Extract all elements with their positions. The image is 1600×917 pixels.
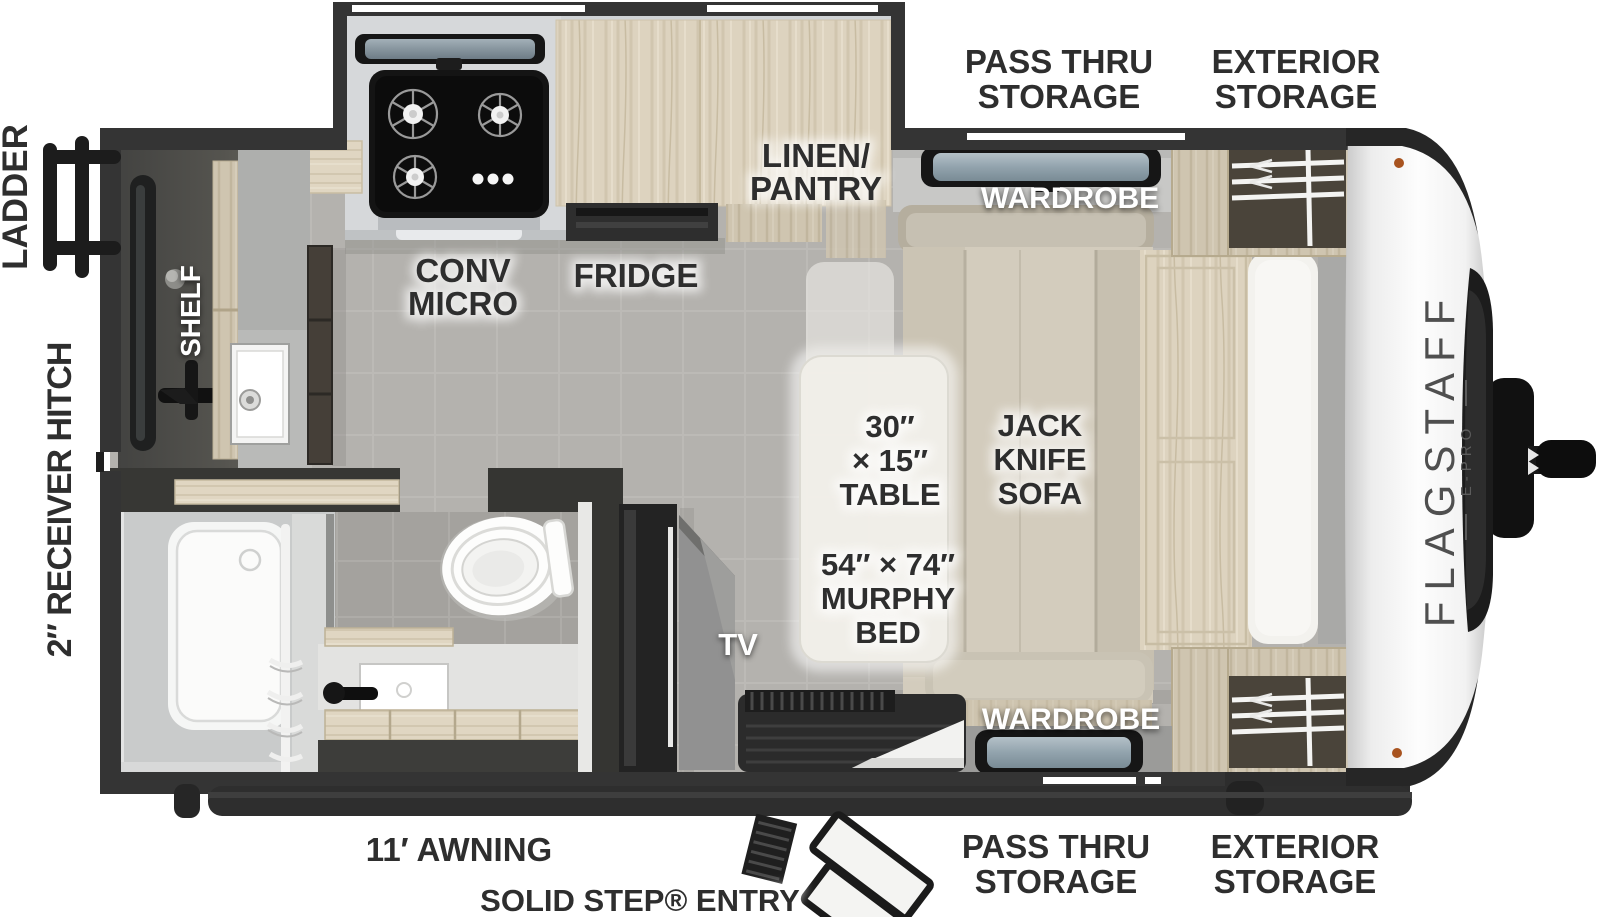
svg-text:STORAGE: STORAGE <box>1214 863 1377 900</box>
svg-text:BED: BED <box>855 615 920 650</box>
svg-text:TABLE: TABLE <box>839 477 940 512</box>
svg-text:30″: 30″ <box>865 409 914 444</box>
svg-text:SOFA: SOFA <box>998 476 1082 511</box>
svg-text:STORAGE: STORAGE <box>975 863 1138 900</box>
svg-text:E-PRO: E-PRO <box>1458 424 1475 497</box>
svg-text:PASS THRU: PASS THRU <box>965 43 1153 80</box>
svg-text:SHELF: SHELF <box>175 265 206 357</box>
svg-text:CONV: CONV <box>415 252 510 289</box>
svg-text:11′ AWNING: 11′ AWNING <box>366 831 552 868</box>
svg-text:LADDER: LADDER <box>0 124 35 270</box>
svg-text:LINEN/: LINEN/ <box>762 137 870 174</box>
svg-text:FLAGSTAFF: FLAGSTAFF <box>1416 289 1463 628</box>
svg-text:2″ RECEIVER HITCH: 2″ RECEIVER HITCH <box>41 343 79 658</box>
svg-text:SOLID STEP® ENTRY: SOLID STEP® ENTRY <box>480 883 800 917</box>
svg-text:× 15″: × 15″ <box>852 443 928 478</box>
svg-text:JACK: JACK <box>998 408 1083 443</box>
svg-text:KNIFE: KNIFE <box>994 442 1087 477</box>
svg-text:MICRO: MICRO <box>408 285 518 322</box>
svg-text:FRIDGE: FRIDGE <box>574 257 699 294</box>
svg-text:MURPHY: MURPHY <box>821 581 956 616</box>
svg-text:STORAGE: STORAGE <box>1215 78 1378 115</box>
svg-text:PANTRY: PANTRY <box>750 170 882 207</box>
svg-text:54″ × 74″: 54″ × 74″ <box>821 547 955 582</box>
svg-text:STORAGE: STORAGE <box>978 78 1141 115</box>
svg-text:EXTERIOR: EXTERIOR <box>1212 43 1381 80</box>
svg-text:WARDROBE: WARDROBE <box>982 703 1160 736</box>
svg-text:TV: TV <box>718 627 758 662</box>
svg-text:EXTERIOR: EXTERIOR <box>1211 828 1380 865</box>
svg-text:WARDROBE: WARDROBE <box>981 182 1159 215</box>
svg-text:PASS THRU: PASS THRU <box>962 828 1150 865</box>
